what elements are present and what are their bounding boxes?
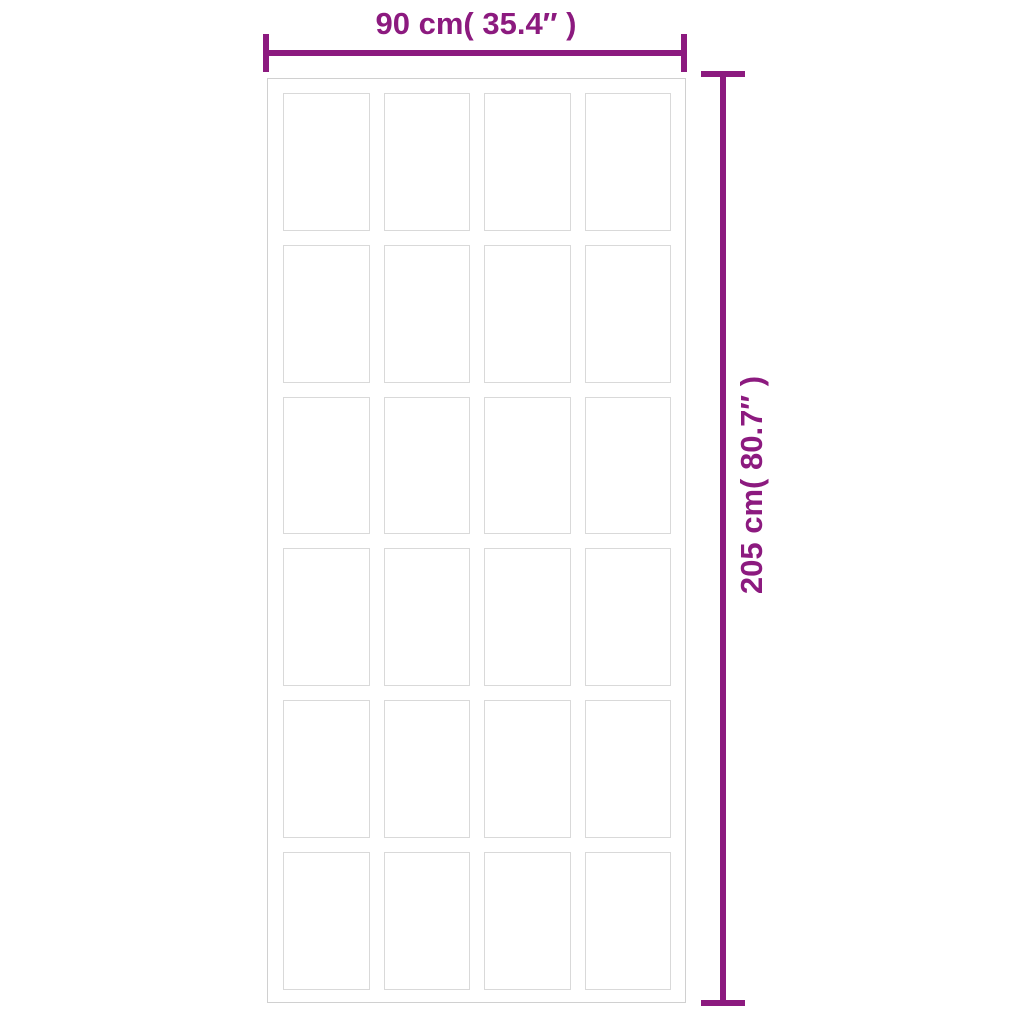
door-panel — [384, 852, 471, 990]
door-outline — [267, 78, 686, 1003]
door-panel — [585, 93, 672, 231]
door-panel — [484, 852, 571, 990]
door-panel — [384, 397, 471, 535]
door-panel — [283, 700, 370, 838]
door-panel — [585, 852, 672, 990]
door-panel — [384, 245, 471, 383]
door-grid — [283, 93, 671, 990]
door-panel — [484, 548, 571, 686]
door-panel — [484, 700, 571, 838]
door-panel — [484, 93, 571, 231]
height-dimension-label: 205 cm( 80.7″ ) — [734, 376, 770, 594]
door-panel — [384, 700, 471, 838]
height-dimension-tick-bottom — [701, 1000, 745, 1006]
width-dimension-tick-left — [263, 34, 269, 72]
door-panel — [283, 548, 370, 686]
door-panel — [484, 245, 571, 383]
door-panel — [384, 93, 471, 231]
door-panel — [283, 852, 370, 990]
width-dimension-label: 90 cm( 35.4″ ) — [266, 6, 686, 42]
door-panel — [585, 700, 672, 838]
height-dimension-line — [720, 71, 726, 1006]
width-dimension-line — [266, 50, 686, 56]
product-diagram: 90 cm( 35.4″ ) 205 cm( 80.7″ ) — [0, 0, 1024, 1024]
door-panel — [484, 397, 571, 535]
door-panel — [283, 245, 370, 383]
door-panel — [283, 93, 370, 231]
width-dimension-tick-right — [681, 34, 687, 72]
door-panel — [384, 548, 471, 686]
door-panel — [585, 245, 672, 383]
door-panel — [585, 548, 672, 686]
height-dimension-tick-top — [701, 71, 745, 77]
door-panel — [283, 397, 370, 535]
door-panel — [585, 397, 672, 535]
